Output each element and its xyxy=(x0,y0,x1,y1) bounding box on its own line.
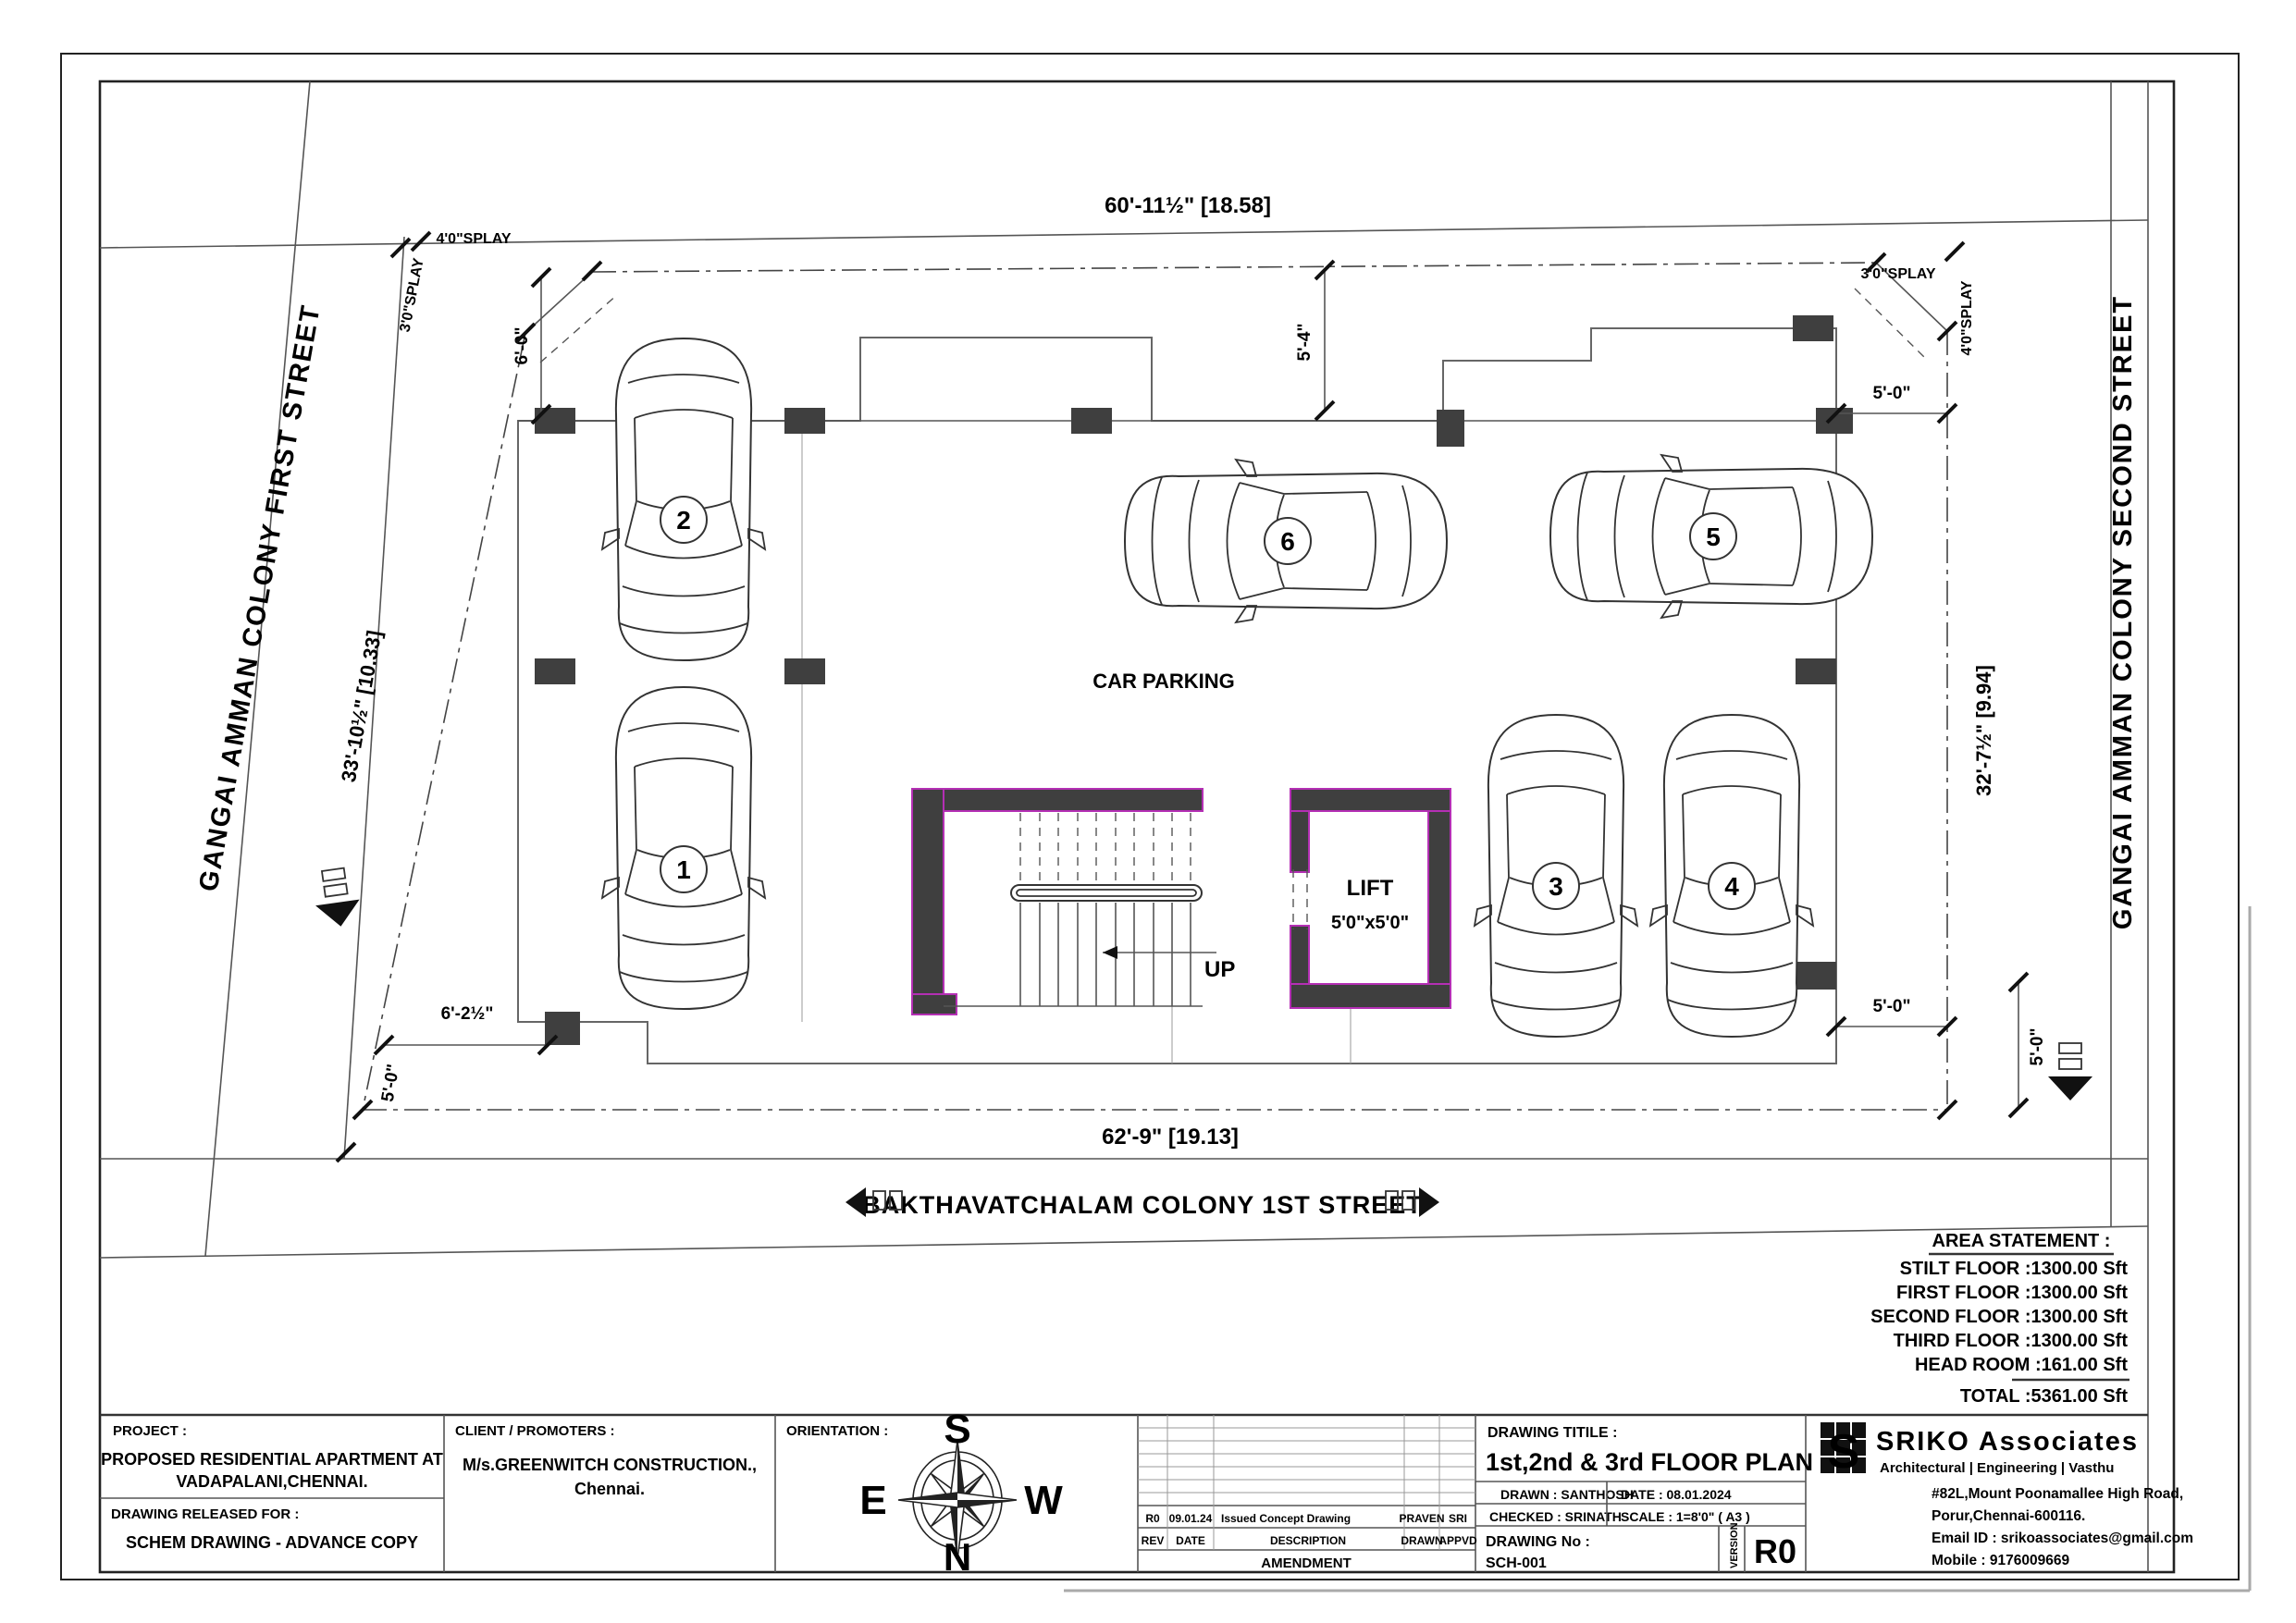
drawing-title-value: 1st,2nd & 3rd FLOOR PLAN xyxy=(1486,1448,1813,1476)
firm-addr3: Email ID : srikoassociates@gmail.com xyxy=(1932,1531,2193,1546)
car-parking-label: CAR PARKING xyxy=(1092,670,1235,693)
boundary-left xyxy=(363,333,525,1110)
car-number: 2 xyxy=(676,506,691,535)
amendment-hdr-rev: REV xyxy=(1142,1534,1165,1547)
version-value: R0 xyxy=(1754,1532,1796,1570)
area-row: STILT FLOOR :1300.00 Sft xyxy=(1900,1259,2129,1279)
cars: 1 2 3 4 5 6 xyxy=(602,338,1872,1037)
drawing-no: SCH-001 xyxy=(1486,1555,1547,1571)
arrow-left-icon xyxy=(846,1187,866,1217)
compass-s: S xyxy=(944,1407,970,1452)
firm-name: SRIKO Associates xyxy=(1876,1427,2139,1457)
logo-letter: S xyxy=(1828,1425,1860,1479)
dim-bottom: 62'-9" [19.13] xyxy=(1102,1125,1239,1150)
project-line2: VADAPALANI,CHENNAI. xyxy=(176,1472,367,1491)
client-cell: CLIENT / PROMOTERS : M/s.GREENWITCH CONS… xyxy=(455,1423,757,1498)
dim-5-0-bottom-left: 5'-0" xyxy=(378,1063,404,1103)
street-direction-marker-left xyxy=(311,867,363,929)
drawing-title-label: DRAWING TITILE : xyxy=(1487,1425,1617,1441)
area-title: AREA STATEMENT : xyxy=(1932,1231,2111,1251)
drawing-title-cell: DRAWING TITILE : 1st,2nd & 3rd FLOOR PLA… xyxy=(1475,1425,1813,1572)
dim-right: 32'-7½" [9.94] xyxy=(1972,665,1995,796)
drawn-by: DRAWN : SANTHOSH xyxy=(1500,1487,1634,1502)
checked-by: CHECKED : SRINATH xyxy=(1489,1509,1622,1524)
dim-6-2half: 6'-2½" xyxy=(441,1004,494,1024)
amendment-drawn: PRAVEN xyxy=(1399,1512,1444,1525)
car-number: 1 xyxy=(676,855,691,884)
up-label: UP xyxy=(1204,957,1235,982)
dim-5-0-bottom-right: 5'-0" xyxy=(1873,997,1911,1016)
up-arrowhead xyxy=(1103,946,1117,959)
firm-addr4: Mobile : 9176009669 xyxy=(1932,1553,2069,1568)
dim-left: 33'-10½" [10.33] xyxy=(337,629,386,784)
amendment-footer: AMENDMENT xyxy=(1261,1555,1352,1571)
dim-5-0-top-right: 5'-0" xyxy=(1873,384,1911,403)
street-right-label: GANGAI AMMAN COLONY SECOND STREET xyxy=(2108,295,2138,929)
staircase: UP xyxy=(912,789,1235,1014)
title-block: PROJECT : PROPOSED RESIDENTIAL APARTMENT… xyxy=(100,1407,2193,1579)
area-statement: AREA STATEMENT : STILT FLOOR :1300.00 Sf… xyxy=(1870,1231,2129,1407)
amendment-hdr-appvd: APPVD xyxy=(1438,1534,1477,1547)
amendment-hdr-drawn: DRAWN xyxy=(1401,1534,1442,1547)
car-number: 6 xyxy=(1280,527,1295,556)
boundary-top xyxy=(592,263,1876,272)
floor-plan-sheet: 1 2 3 4 5 6 CAR PARKING UP xyxy=(0,0,2296,1623)
area-row: HEAD ROOM :161.00 Sft xyxy=(1915,1355,2128,1375)
stair-handrail xyxy=(1011,885,1202,901)
amendment-hdr-desc: DESCRIPTION xyxy=(1270,1534,1346,1547)
client-label: CLIENT / PROMOTERS : xyxy=(455,1423,615,1439)
version-label: VERSION xyxy=(1729,1522,1740,1568)
splay-4-0-right: 4'0"SPLAY xyxy=(1959,280,1975,355)
amendment-date: 09.01.24 xyxy=(1169,1512,1213,1525)
firm-tagline: Architectural | Engineering | Vasthu xyxy=(1880,1460,2114,1476)
lift-size-label: 5'0"x5'0" xyxy=(1331,913,1409,933)
amendment-rev: R0 xyxy=(1145,1512,1160,1525)
amendment-hdr-date: DATE xyxy=(1176,1534,1205,1547)
area-row: THIRD FLOOR :1300.00 Sft xyxy=(1894,1331,2129,1351)
drawing-date: DATE : 08.01.2024 xyxy=(1621,1487,1732,1502)
compass-w: W xyxy=(1024,1478,1063,1523)
lift: LIFT 5'0"x5'0" xyxy=(1290,789,1450,1008)
project-label: PROJECT : xyxy=(113,1423,187,1439)
car-number: 5 xyxy=(1706,523,1721,551)
street-left-label: GANGAI AMMAN COLONY FIRST STREET xyxy=(193,302,326,894)
arrow-right-icon xyxy=(1419,1187,1439,1217)
dim-5-0-right-vertical: 5'-0" xyxy=(2028,1028,2047,1066)
compass-n: N xyxy=(944,1535,971,1579)
amendment-appvd: SRI xyxy=(1449,1512,1467,1525)
orientation-cell: ORIENTATION : S E W N xyxy=(786,1407,1063,1579)
released-label: DRAWING RELEASED FOR : xyxy=(111,1506,299,1522)
project-line1: PROPOSED RESIDENTIAL APARTMENT AT xyxy=(101,1450,443,1469)
splay-4-0-left: 4'0"SPLAY xyxy=(436,231,511,247)
client-line2: Chennai. xyxy=(574,1480,645,1498)
firm-cell: S SRIKO Associates Architectural | Engin… xyxy=(1821,1422,2193,1568)
orientation-label: ORIENTATION : xyxy=(786,1423,888,1439)
compass-e: E xyxy=(859,1478,886,1523)
amendment-table: R0 09.01.24 Issued Concept Drawing PRAVE… xyxy=(1138,1415,1477,1571)
dim-top: 60'-11½" [18.58] xyxy=(1105,193,1271,218)
dim-5-4: 5'-4" xyxy=(1295,324,1315,362)
dim-6-0: 6'-0" xyxy=(512,327,532,365)
amendment-desc: Issued Concept Drawing xyxy=(1221,1512,1351,1525)
released-value: SCHEM DRAWING - ADVANCE COPY xyxy=(126,1533,418,1552)
lift-label: LIFT xyxy=(1347,876,1394,901)
strip-divider xyxy=(100,1226,2148,1258)
car-number: 4 xyxy=(1724,872,1739,901)
firm-addr1: #82L,Mount Poonamallee High Road, xyxy=(1932,1486,2183,1502)
stair-treads xyxy=(1020,813,1191,1006)
street-direction-marker-right xyxy=(2048,1043,2092,1100)
project-cell: PROJECT : PROPOSED RESIDENTIAL APARTMENT… xyxy=(100,1423,444,1552)
car-number: 3 xyxy=(1549,872,1563,901)
firm-addr2: Porur,Chennai-600116. xyxy=(1932,1508,2085,1524)
sriko-logo-icon: S xyxy=(1821,1422,1866,1479)
area-total: TOTAL :5361.00 Sft xyxy=(1960,1386,2129,1407)
street-bottom-label: BAKTHAVATCHALAM COLONY 1ST STREET xyxy=(862,1191,1423,1219)
area-row: FIRST FLOOR :1300.00 Sft xyxy=(1896,1283,2128,1303)
drawing-no-label: DRAWING No : xyxy=(1486,1534,1590,1550)
drawing-scale: SCALE : 1=8'0" ( A3 ) xyxy=(1621,1509,1750,1524)
client-line1: M/s.GREENWITCH CONSTRUCTION., xyxy=(463,1456,757,1474)
area-row: SECOND FLOOR :1300.00 Sft xyxy=(1870,1307,2128,1327)
